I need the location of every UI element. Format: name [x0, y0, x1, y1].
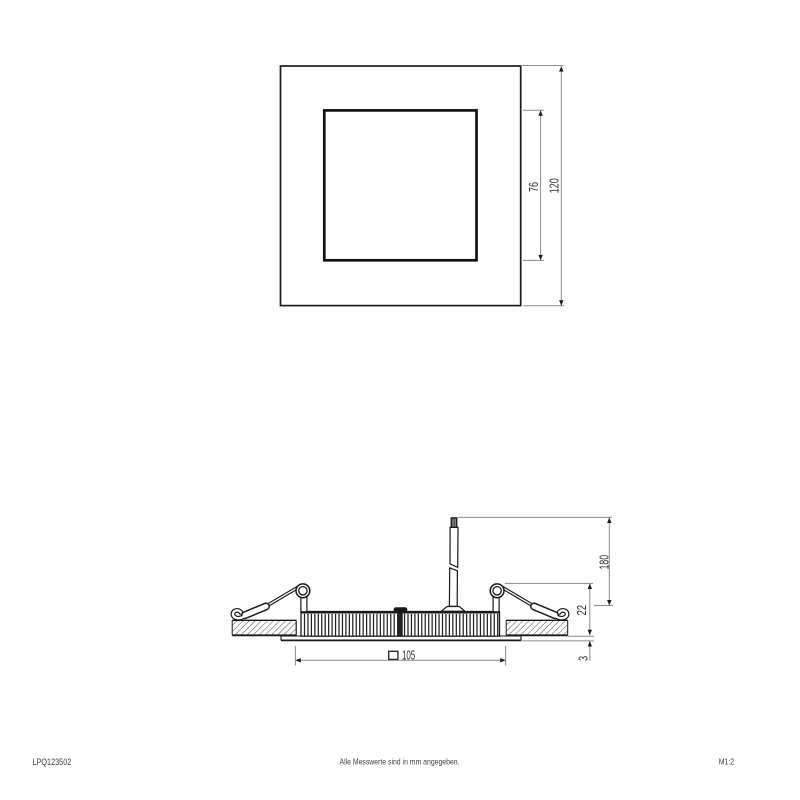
- svg-text:Alle Messwerte sind in mm ange: Alle Messwerte sind in mm angegeben.: [340, 756, 460, 766]
- svg-text:180: 180: [597, 555, 612, 570]
- svg-text:LPQ123502: LPQ123502: [33, 757, 72, 767]
- svg-text:3: 3: [575, 656, 590, 661]
- svg-text:22: 22: [574, 605, 589, 616]
- svg-text:120: 120: [547, 178, 562, 193]
- svg-text:105: 105: [402, 648, 415, 663]
- svg-text:76: 76: [526, 182, 541, 192]
- svg-text:M1:2: M1:2: [719, 757, 734, 767]
